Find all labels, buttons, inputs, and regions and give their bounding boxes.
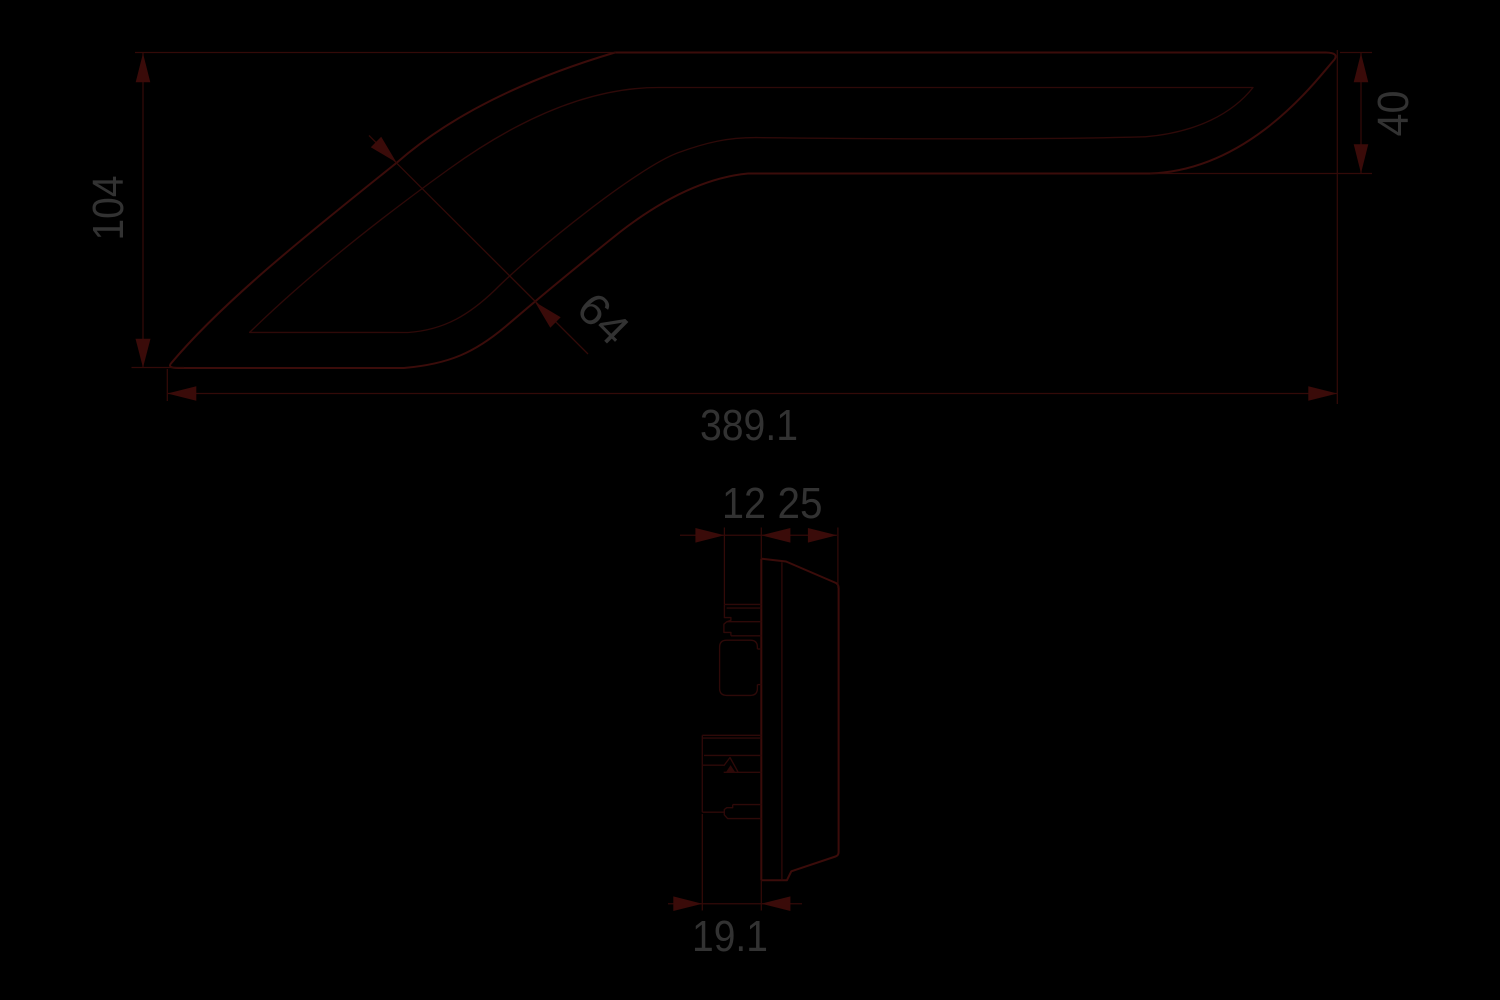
svg-text:104: 104 — [84, 176, 133, 241]
svg-text:12: 12 — [722, 479, 766, 528]
svg-text:40: 40 — [1369, 91, 1418, 137]
svg-text:389.1: 389.1 — [700, 401, 798, 450]
svg-text:19.1: 19.1 — [692, 912, 768, 961]
svg-text:25: 25 — [778, 479, 823, 528]
